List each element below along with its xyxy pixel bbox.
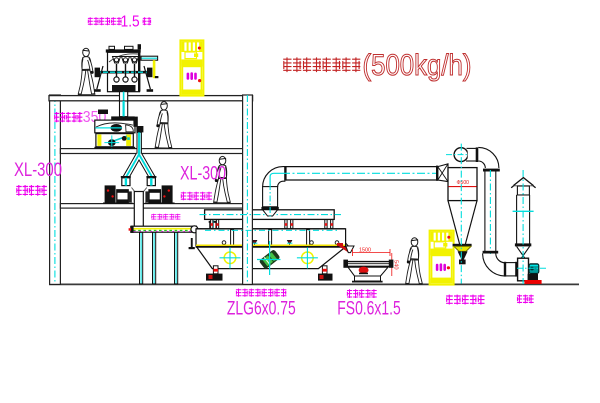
svg-text:Φ500: Φ500 bbox=[457, 180, 470, 186]
svg-text:1500: 1500 bbox=[359, 247, 371, 253]
svg-text:FS0.6x1.5: FS0.6x1.5 bbox=[337, 299, 400, 320]
svg-text:XL-300: XL-300 bbox=[14, 160, 62, 181]
svg-text:1.5: 1.5 bbox=[121, 13, 140, 30]
svg-text:(500kg/h): (500kg/h) bbox=[363, 49, 472, 82]
svg-text:XL-300: XL-300 bbox=[180, 163, 226, 184]
svg-text:ZLG6x0.75: ZLG6x0.75 bbox=[227, 299, 296, 320]
